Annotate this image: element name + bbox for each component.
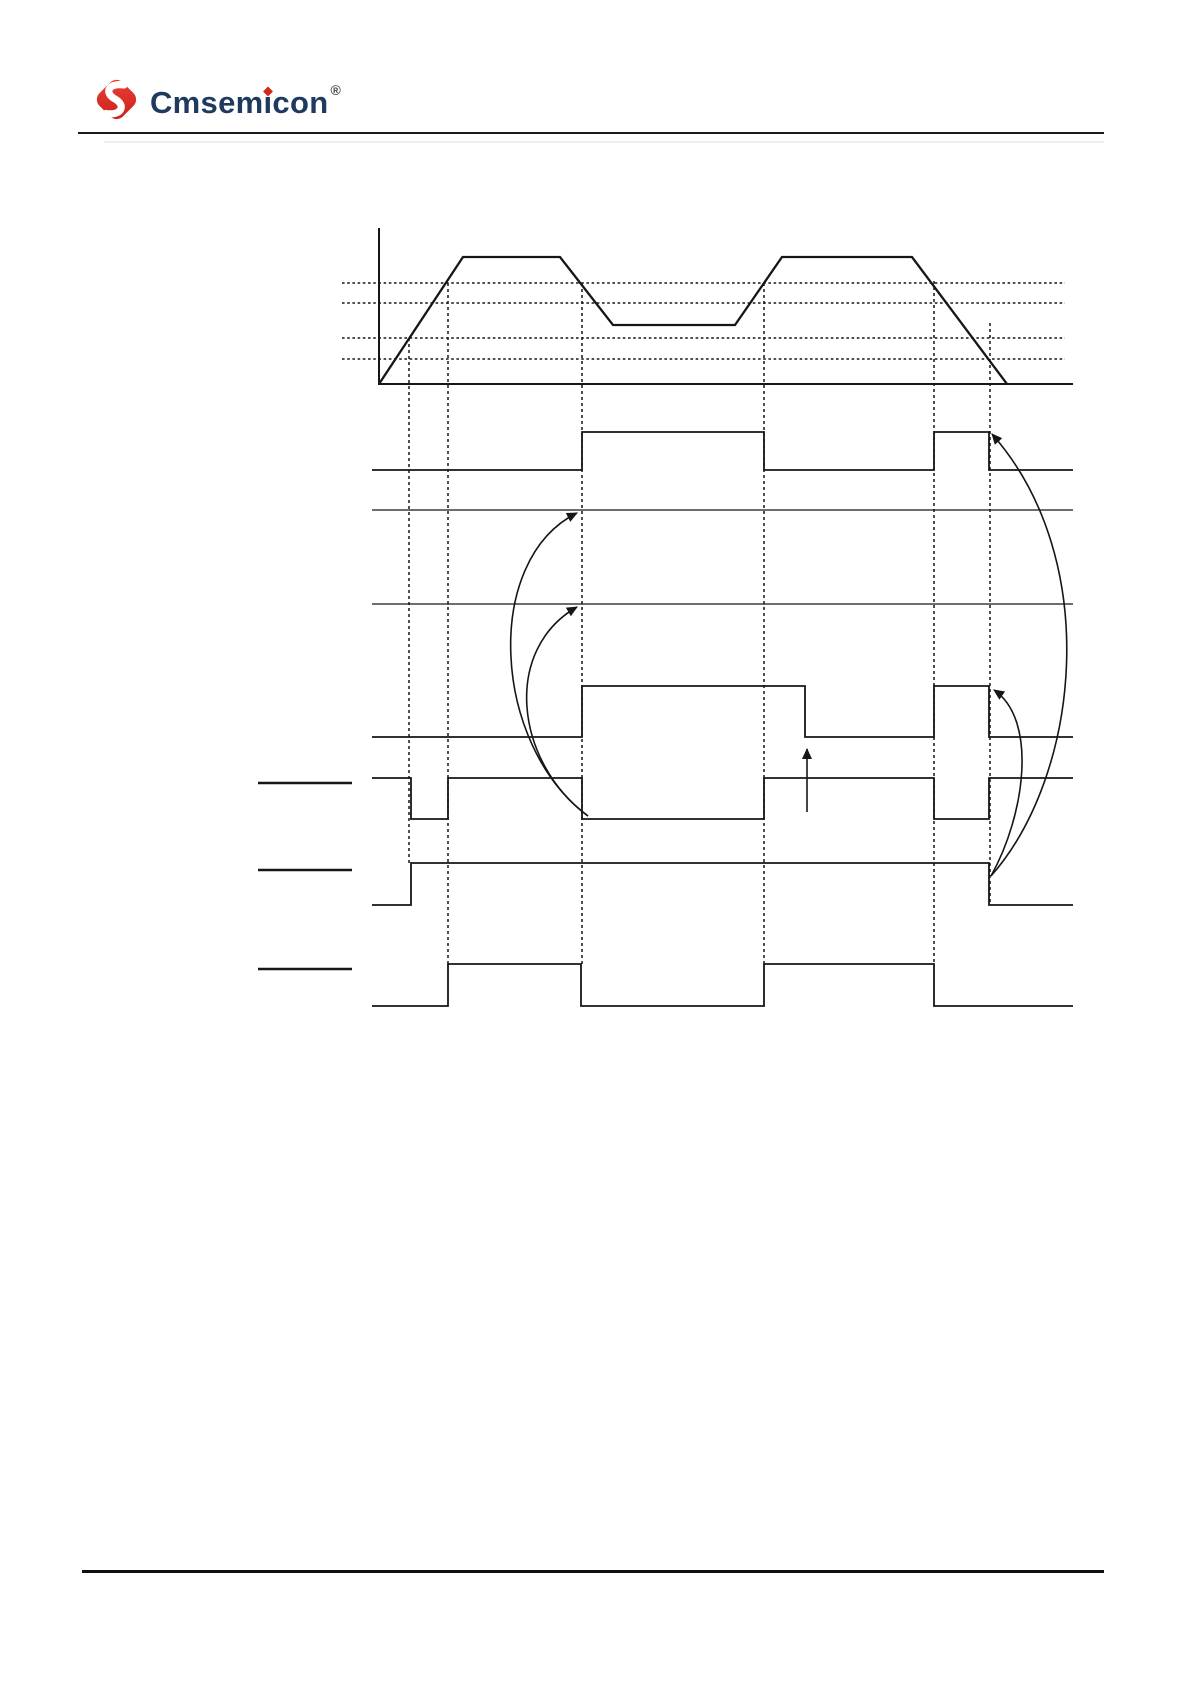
update-arrow-left-outer bbox=[511, 513, 588, 816]
digital-signal-3 bbox=[372, 778, 1073, 819]
update-arrow-right-outer bbox=[991, 434, 1067, 876]
digital-signal-2 bbox=[372, 686, 1073, 737]
digital-signal-5 bbox=[372, 964, 1073, 1006]
update-arrow-right-inner bbox=[991, 690, 1022, 876]
datasheet-page: Cmsemicon® bbox=[0, 0, 1190, 1684]
footer-rule bbox=[82, 1570, 1104, 1573]
update-arrow-left-inner bbox=[527, 607, 588, 816]
digital-signal-1 bbox=[372, 432, 1073, 470]
carrier-wave bbox=[379, 257, 1007, 384]
timing-diagram bbox=[0, 0, 1190, 1684]
digital-signal-4 bbox=[372, 863, 1073, 905]
